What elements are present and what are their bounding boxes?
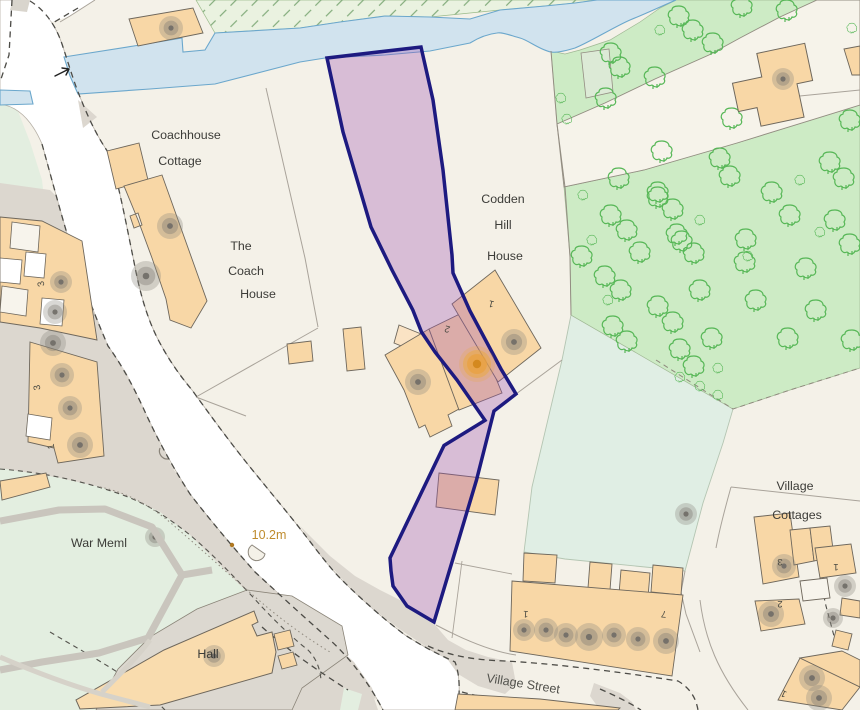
svg-text:Cottages: Cottages: [772, 508, 822, 522]
svg-text:Cottage: Cottage: [158, 154, 202, 168]
svg-text:Coachhouse: Coachhouse: [151, 128, 221, 142]
svg-text:House: House: [487, 249, 523, 263]
svg-text:War Meml: War Meml: [71, 536, 127, 550]
svg-text:Village: Village: [777, 479, 814, 493]
svg-text:1: 1: [523, 608, 529, 619]
svg-text:House: House: [240, 287, 276, 301]
svg-text:3: 3: [777, 556, 782, 567]
svg-text:2: 2: [777, 598, 782, 609]
svg-text:7: 7: [661, 608, 667, 619]
svg-text:Coach: Coach: [228, 264, 264, 278]
svg-text:Hall: Hall: [197, 647, 218, 661]
svg-text:Codden: Codden: [481, 192, 525, 206]
svg-text:1: 1: [833, 561, 838, 572]
svg-text:10.2m: 10.2m: [252, 528, 287, 542]
svg-text:Hill: Hill: [494, 218, 511, 232]
svg-text:The: The: [230, 239, 251, 253]
